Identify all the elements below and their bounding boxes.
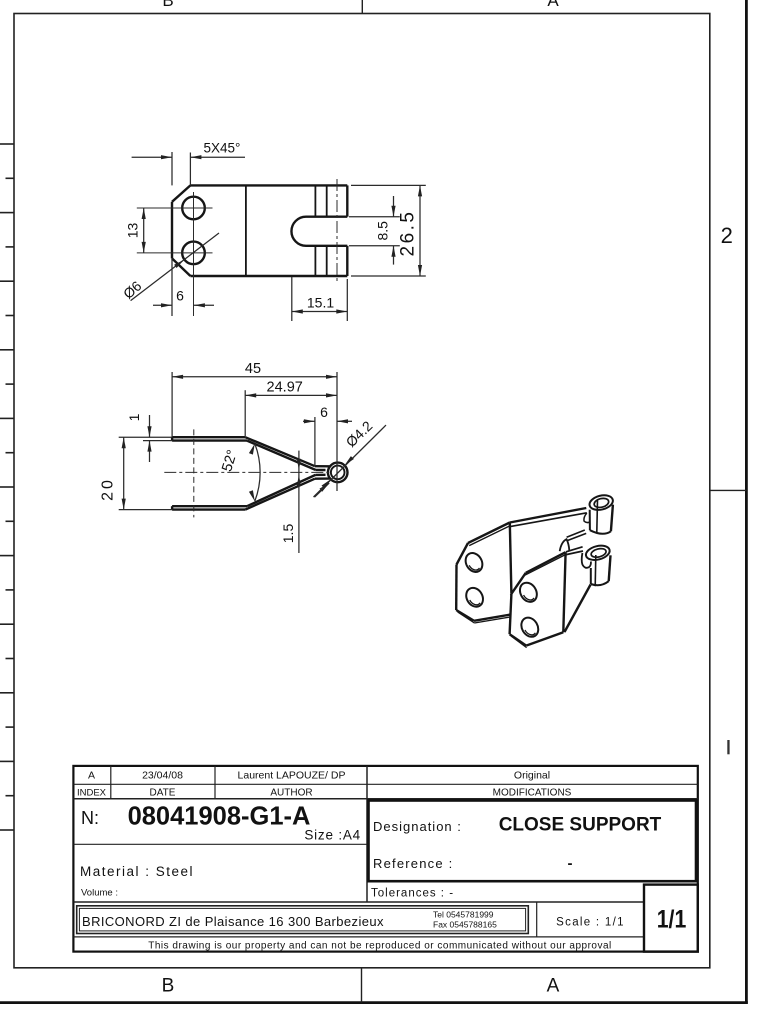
svg-text:1/1: 1/1: [657, 905, 687, 933]
svg-text:Ø6: Ø6: [120, 277, 145, 301]
svg-text:Fax 0545788165: Fax 0545788165: [433, 920, 497, 930]
svg-text:Laurent LAPOUZE/ DP: Laurent LAPOUZE/ DP: [238, 770, 346, 782]
svg-text:Material : Steel: Material : Steel: [80, 864, 194, 879]
svg-text:24.97: 24.97: [267, 380, 303, 396]
svg-text:This drawing is our property a: This drawing is our property and can not…: [148, 940, 612, 951]
svg-text:20: 20: [100, 477, 117, 501]
svg-text:Reference :: Reference :: [373, 856, 453, 871]
svg-text:13: 13: [124, 223, 140, 239]
svg-text:Designation :: Designation :: [373, 819, 462, 834]
svg-text:26.5: 26.5: [398, 210, 419, 257]
svg-text:6: 6: [320, 404, 328, 420]
svg-text:CLOSE SUPPORT: CLOSE SUPPORT: [499, 815, 662, 836]
svg-text:5X45°: 5X45°: [204, 141, 241, 156]
svg-text:-: -: [568, 855, 573, 872]
svg-text:Scale : 1/1: Scale : 1/1: [556, 917, 625, 929]
svg-text:BRICONORD ZI de Plaisance 16 3: BRICONORD ZI de Plaisance 16 300 Barbezi…: [82, 914, 384, 929]
svg-text:08041908-G1-A: 08041908-G1-A: [128, 803, 311, 831]
svg-text:23/04/08: 23/04/08: [142, 770, 183, 782]
svg-text:A: A: [547, 976, 560, 997]
svg-text:AUTHOR: AUTHOR: [270, 787, 312, 798]
svg-text:INDEX: INDEX: [77, 787, 107, 798]
svg-text:8.5: 8.5: [375, 221, 391, 241]
svg-text:A: A: [547, 0, 559, 10]
svg-text:Tolerances : -: Tolerances : -: [371, 888, 454, 900]
svg-text:1.5: 1.5: [280, 524, 296, 544]
svg-text:Original: Original: [514, 770, 550, 782]
svg-text:6: 6: [176, 288, 184, 304]
svg-text:DATE: DATE: [150, 787, 176, 798]
svg-text:52°: 52°: [219, 448, 241, 474]
svg-text:B: B: [162, 976, 175, 997]
svg-text:1: 1: [126, 413, 142, 421]
svg-text:A: A: [88, 770, 95, 782]
svg-text:45: 45: [245, 361, 261, 377]
svg-text:MODIFICATIONS: MODIFICATIONS: [493, 787, 572, 798]
svg-text:B: B: [162, 0, 173, 10]
svg-text:Volume :: Volume :: [81, 888, 118, 899]
svg-text:Size :A4: Size :A4: [304, 828, 361, 843]
svg-text:Tel 0545781999: Tel 0545781999: [433, 910, 494, 920]
svg-text:2: 2: [721, 223, 733, 248]
svg-text:15.1: 15.1: [307, 295, 334, 311]
svg-text:N:: N:: [81, 808, 99, 828]
